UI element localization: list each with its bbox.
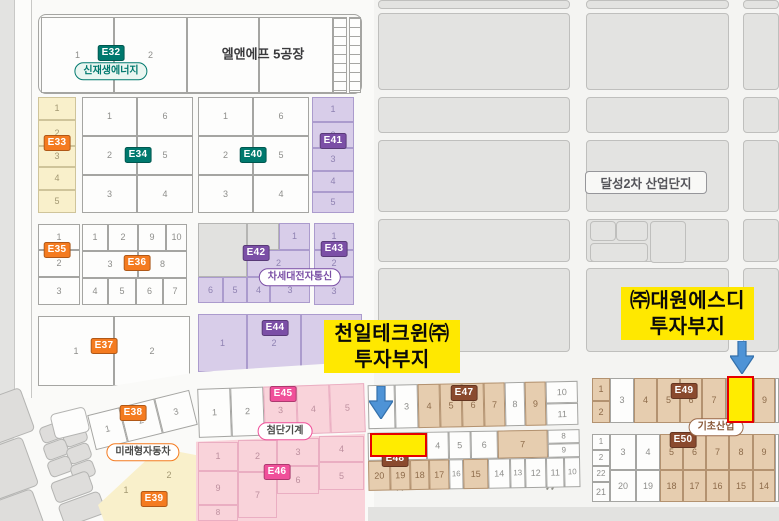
zone-badge-E47: E47 [451, 385, 478, 401]
zone-badge-E41: E41 [320, 133, 347, 149]
callout-line: 투자부지 [324, 347, 460, 373]
zone-badge-E33: E33 [44, 135, 71, 151]
highlight-investment-site-e49 [727, 376, 754, 423]
tag-next-gen-electronics: 차세대전자통신 [259, 268, 341, 286]
callout-cheonil-investment-site: 천일테크윈㈜ 투자부지 [324, 320, 460, 373]
tag-future-automobile: 미래형자동차 [106, 443, 179, 461]
arrow-down-icon [369, 386, 393, 419]
zone-badge-E37: E37 [91, 338, 118, 354]
zone-badge-E46: E46 [264, 464, 291, 480]
tag-renewable-energy: 신재생에너지 [74, 62, 147, 80]
zone-badge-E49: E49 [671, 383, 698, 399]
tag-advanced-machinery: 첨단기계 [258, 422, 313, 440]
zone-badge-E45: E45 [270, 386, 297, 402]
arrow-down-icon [730, 341, 754, 374]
zone-badge-E34: E34 [125, 147, 152, 163]
callout-line: 천일테크윈㈜ [324, 321, 460, 347]
callout-line: ㈜대원에스디 [621, 288, 754, 314]
zone-badge-E32: E32 [98, 45, 125, 61]
callout-daewon-investment-site: ㈜대원에스디 투자부지 [621, 287, 754, 340]
zone-badge-E44: E44 [262, 320, 289, 336]
zone-badge-E39: E39 [141, 491, 168, 507]
zone-badge-E35: E35 [44, 242, 71, 258]
zone-badge-E43: E43 [321, 241, 348, 257]
zone-badge-E42: E42 [243, 245, 270, 261]
zone-badge-E38: E38 [120, 405, 147, 421]
zone-badge-E36: E36 [124, 255, 151, 271]
highlight-investment-site-e48 [370, 433, 427, 457]
industrial-complex-map: 1212345162534162534123451231291038456712… [0, 0, 779, 521]
callout-line: 투자부지 [621, 314, 754, 340]
zone-badge-E40: E40 [240, 147, 267, 163]
